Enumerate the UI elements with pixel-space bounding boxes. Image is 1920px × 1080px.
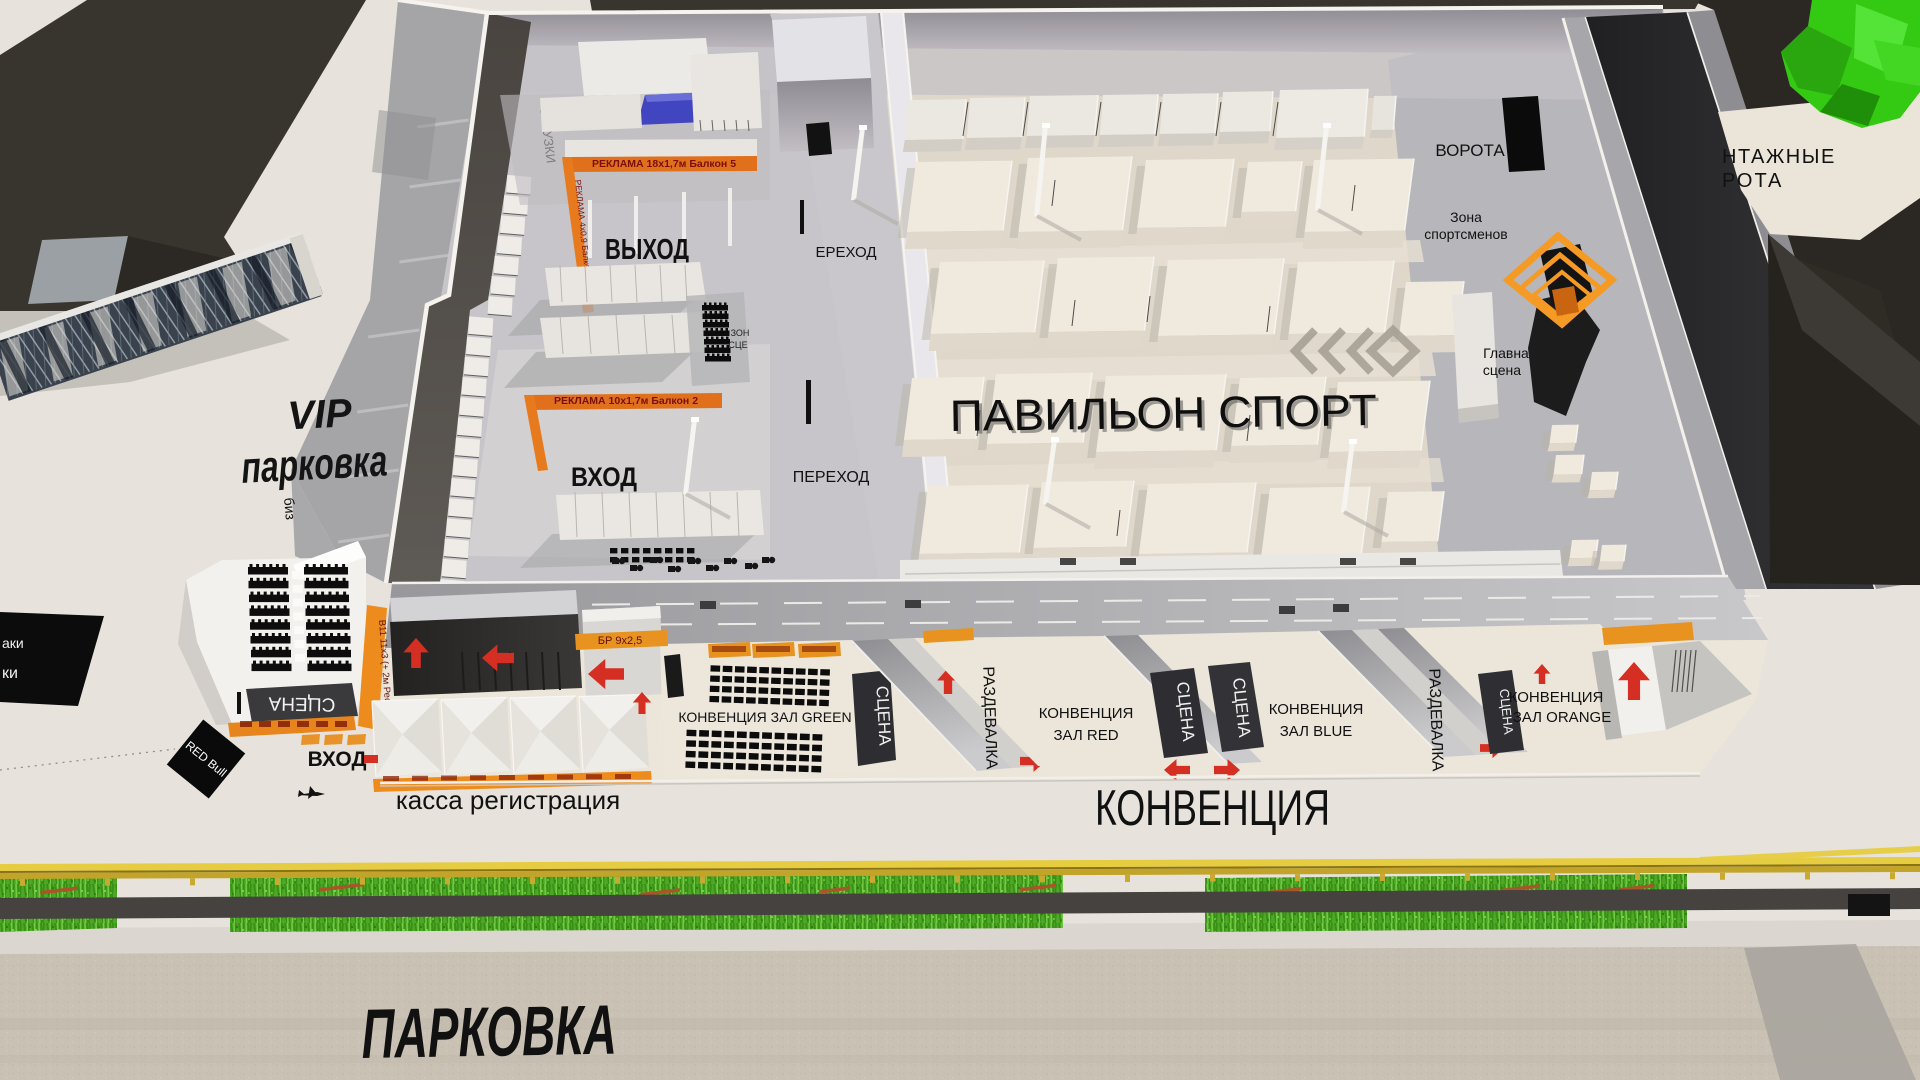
svg-text:СЦЕНА: СЦЕНА [268, 692, 336, 714]
svg-text:ВХОД: ВХОД [571, 462, 637, 492]
svg-text:ЗАЛ RED: ЗАЛ RED [1053, 727, 1118, 744]
svg-text:НТАЖНЫЕ: НТАЖНЫЕ [1722, 146, 1836, 168]
svg-text:ЗАЛ ORANGE: ЗАЛ ORANGE [1513, 709, 1611, 726]
svg-text:ЗАЛ BLUE: ЗАЛ BLUE [1280, 723, 1353, 740]
svg-text:Главна: Главна [1483, 345, 1529, 361]
svg-text:БР 9х2,5: БР 9х2,5 [598, 635, 643, 647]
svg-text:ЕРЕХОД: ЕРЕХОД [815, 244, 876, 261]
svg-text:биз: биз [281, 497, 299, 521]
svg-text:парковка: парковка [240, 436, 388, 493]
svg-text:РОТА: РОТА [1722, 170, 1783, 192]
svg-text:КОНВЕНЦИЯ ЗАЛ GREEN: КОНВЕНЦИЯ ЗАЛ GREEN [678, 709, 851, 725]
svg-text:касса регистрация: касса регистрация [396, 785, 620, 815]
svg-text:аки: аки [2, 635, 24, 651]
svg-text:сцена: сцена [1483, 362, 1521, 378]
svg-text:ПАРКОВКА: ПАРКОВКА [361, 991, 617, 1073]
svg-text:VIP: VIP [287, 391, 354, 438]
svg-text:ПАВИЛЬОН СПОРТ: ПАВИЛЬОН СПОРТ [949, 386, 1377, 441]
svg-text:КОНВЕНЦИЯ: КОНВЕНЦИЯ [1039, 705, 1134, 722]
svg-text:КОНВЕНЦИЯ: КОНВЕНЦИЯ [1095, 780, 1330, 836]
svg-text:РАЗДЕВАЛКА: РАЗДЕВАЛКА [1425, 668, 1446, 772]
svg-text:ки: ки [2, 665, 18, 682]
svg-text:Зона: Зона [1450, 209, 1482, 225]
svg-text:ПЕРЕХОД: ПЕРЕХОД [793, 469, 870, 486]
svg-text:РАЗДЕВАЛКА: РАЗДЕВАЛКА [979, 666, 1000, 770]
svg-text:СЦЕНА: СЦЕНА [872, 685, 894, 746]
svg-text:СЦЕ: СЦЕ [728, 340, 747, 350]
svg-text:РЕКЛАМА 10х1,7м Балкон 2: РЕКЛАМА 10х1,7м Балкон 2 [554, 395, 698, 407]
svg-text:КОНВЕНЦИЯ: КОНВЕНЦИЯ [1509, 689, 1604, 706]
svg-text:РЕКЛАМА 18х1,7м Балкон 5: РЕКЛАМА 18х1,7м Балкон 5 [592, 158, 736, 170]
svg-text:спортсменов: спортсменов [1424, 226, 1507, 242]
svg-text:ВЫХОД: ВЫХОД [605, 234, 689, 266]
svg-text:ВХОД: ВХОД [308, 748, 367, 771]
svg-text:КОНВЕНЦИЯ: КОНВЕНЦИЯ [1269, 701, 1364, 718]
svg-text:ВОРОТА: ВОРОТА [1435, 141, 1505, 160]
svg-text:ЗОН: ЗОН [731, 328, 750, 338]
